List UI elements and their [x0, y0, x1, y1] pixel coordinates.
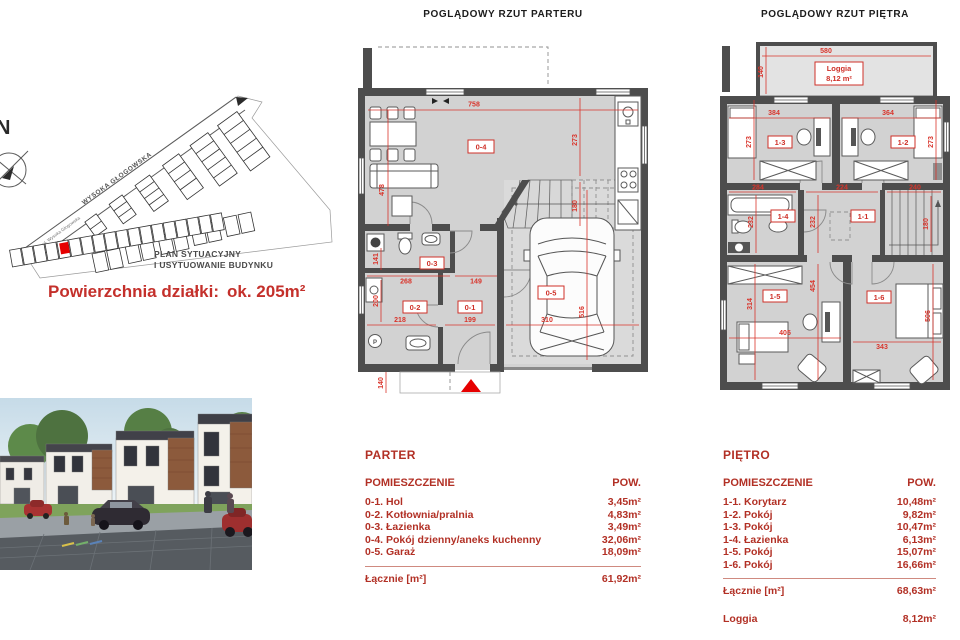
site-plan-caption: PLAN SYTUACYJNY I USYTUOWANIE BUDYNKU — [154, 249, 273, 271]
north-label: N — [0, 117, 10, 139]
shaft — [933, 163, 942, 180]
room-area: 32,06m² — [602, 534, 641, 547]
pietro-total-row: Łącznie [m²] 68,63m² — [723, 578, 936, 597]
room-area: 9,82m² — [903, 509, 936, 522]
ground-floor-plan: P 0-4 0-3 0-2 0-1 0-5 758 478 27 — [350, 40, 656, 432]
table-row: 0-4. Pokój dzienny/aneks kuchenny 32,06m… — [365, 534, 641, 547]
table-row: 0-3. Łazienka 3,49m² — [365, 521, 641, 534]
room-label-0-5: 0-5 — [546, 289, 557, 298]
col-area-header: POW. — [612, 477, 641, 489]
total-value: 68,63m² — [897, 585, 936, 597]
table-row: 0-5. Garaż 18,09m² — [365, 546, 641, 559]
caption-line-1: PLAN SYTUACYJNY — [154, 249, 273, 260]
table-row: 0-1. Hol 3,45m² — [365, 496, 641, 509]
parter-table-header: POMIESZCZENIE POW. — [365, 477, 641, 489]
property-sheet: { "headings": { "ground": "POGLĄDOWY RZU… — [0, 0, 960, 640]
dim-label: 758 — [468, 102, 480, 109]
dim-label: 273 — [746, 136, 753, 148]
ground-floor-heading: POGLĄDOWY RZUT PARTERU — [350, 9, 656, 20]
room-area: 3,49m² — [608, 521, 641, 534]
dim-label: 273 — [572, 134, 579, 146]
room-area: 10,48m² — [897, 496, 936, 509]
dim-label: 364 — [882, 110, 894, 117]
road-arrow-icon — [236, 97, 248, 106]
roof-outline — [378, 47, 548, 87]
dim-label: 273 — [928, 136, 935, 148]
dim-label: 140 — [758, 66, 765, 78]
dim-label: 140 — [378, 377, 385, 389]
col-area-header: POW. — [907, 477, 936, 489]
compass-icon — [0, 151, 28, 189]
house-far-left — [0, 456, 44, 504]
p-symbol: P — [373, 340, 377, 346]
upper-floor-heading: POGLĄDOWY RZUT PIĘTRA — [712, 9, 958, 20]
dim-label: 506 — [925, 310, 932, 322]
plot-area-line: Powierzchnia działki:ok. 205m² — [48, 282, 305, 302]
pietro-table: PIĘTRO POMIESZCZENIE POW. 1-1. Korytarz … — [723, 448, 936, 625]
table-row: 1-2. Pokój 9,82m² — [723, 509, 936, 522]
dim-label: 310 — [541, 317, 553, 324]
dim-label: 268 — [400, 279, 412, 286]
room-name: 0-1. Hol — [365, 496, 403, 509]
room-name: 1-3. Pokój — [723, 521, 773, 534]
garage-door — [504, 367, 592, 370]
room-name: 0-3. Łazienka — [365, 521, 430, 534]
table-row: 1-6. Pokój 16,66m² — [723, 559, 936, 572]
room-name: 0-5. Garaż — [365, 546, 415, 559]
room-name: 0-2. Kotłownia/pralnia — [365, 509, 474, 522]
dim-label: 343 — [876, 344, 888, 351]
room-label-0-1: 0-1 — [465, 303, 476, 312]
dim-label: 141 — [373, 253, 380, 265]
room-name: 0-4. Pokój dzienny/aneks kuchenny — [365, 534, 541, 547]
loggia-value: 8,12m² — [903, 613, 936, 625]
chimney — [363, 48, 372, 95]
room-area: 16,66m² — [897, 559, 936, 572]
total-value: 61,92m² — [602, 573, 641, 585]
side-table — [392, 196, 412, 216]
loggia-name: Loggia — [827, 64, 852, 73]
room-label-0-3: 0-3 — [427, 259, 438, 268]
table-row: 1-3. Pokój 10,47m² — [723, 521, 936, 534]
caption-line-2: I USYTUOWANIE BUDYNKU — [154, 260, 273, 271]
dim-label: 580 — [820, 48, 832, 55]
plot-area-value: ok. 205m² — [227, 282, 305, 301]
room-label-0-4: 0-4 — [476, 143, 488, 152]
room-name: 1-4. Łazienka — [723, 534, 788, 547]
room-label-1-4: 1-4 — [778, 212, 790, 221]
col-room-header: POMIESZCZENIE — [723, 477, 813, 489]
table-row: 1-4. Łazienka 6,13m² — [723, 534, 936, 547]
room-label-1-1: 1-1 — [858, 212, 869, 221]
room-name: 1-6. Pokój — [723, 559, 773, 572]
chimney — [722, 46, 730, 92]
dim-label: 180 — [923, 218, 930, 230]
dining-set — [370, 107, 416, 161]
dim-label: 199 — [464, 317, 476, 324]
parter-table: PARTER POMIESZCZENIE POW. 0-1. Hol 3,45m… — [365, 448, 641, 585]
loggia-label: Loggia — [723, 613, 757, 625]
dim-label: 232 — [748, 216, 755, 228]
selected-plot-marker — [59, 242, 70, 254]
room-area: 18,09m² — [602, 546, 641, 559]
plot-area-label: Powierzchnia działki: — [48, 282, 219, 301]
dim-label: 384 — [768, 110, 780, 117]
room-name: 1-2. Pokój — [723, 509, 773, 522]
room-area: 4,83m² — [608, 509, 641, 522]
room-name: 1-5. Pokój — [723, 546, 773, 559]
dim-label: 478 — [379, 184, 386, 196]
table-row: 1-1. Korytarz 10,48m² — [723, 496, 936, 509]
room-area: 10,47m² — [897, 521, 936, 534]
development-photo — [0, 398, 252, 570]
dim-label: 516 — [579, 306, 586, 318]
loggia-row: Loggia 8,12m² — [723, 613, 936, 625]
dim-label: 454 — [810, 280, 817, 292]
room-name: 1-1. Korytarz — [723, 496, 787, 509]
kitchen-counter — [615, 96, 641, 230]
house-left — [46, 444, 112, 508]
total-label: Łącznie [m²] — [365, 573, 426, 585]
table-row: 0-2. Kotłownia/pralnia 4,83m² — [365, 509, 641, 522]
dim-label: 200 — [373, 295, 380, 307]
dim-label: 405 — [779, 330, 791, 337]
col-room-header: POMIESZCZENIE — [365, 477, 455, 489]
house-middle — [116, 431, 194, 512]
dim-label: 180 — [572, 200, 579, 212]
upper-floor-plan: 580 140 Loggia 8,12 m² — [712, 40, 958, 432]
dim-label: 284 — [752, 185, 764, 192]
parter-table-title: PARTER — [365, 448, 641, 462]
total-label: Łącznie [m²] — [723, 585, 784, 597]
kitchen-sink — [618, 102, 638, 126]
room-label-0-2: 0-2 — [410, 303, 421, 312]
room-label-1-5: 1-5 — [770, 292, 781, 301]
dim-label: 240 — [909, 185, 921, 192]
dim-label: 224 — [836, 185, 848, 192]
dim-label: 314 — [747, 298, 754, 310]
loggia: 580 140 Loggia 8,12 m² — [756, 42, 937, 96]
entrance-porch — [400, 372, 500, 393]
pietro-table-header: POMIESZCZENIE POW. — [723, 477, 936, 489]
dim-label: 232 — [810, 216, 817, 228]
room-label-1-2: 1-2 — [898, 138, 909, 147]
room-area: 6,13m² — [903, 534, 936, 547]
room-area: 15,07m² — [897, 546, 936, 559]
room-label-1-6: 1-6 — [874, 293, 885, 302]
loggia-area: 8,12 m² — [826, 74, 852, 83]
parter-total-row: Łącznie [m²] 61,92m² — [365, 566, 641, 585]
dim-label: 218 — [394, 317, 406, 324]
room-area: 3,45m² — [608, 496, 641, 509]
table-row: 1-5. Pokój 15,07m² — [723, 546, 936, 559]
room-label-1-3: 1-3 — [775, 138, 786, 147]
dim-label: 149 — [470, 279, 482, 286]
pietro-table-title: PIĘTRO — [723, 448, 936, 462]
